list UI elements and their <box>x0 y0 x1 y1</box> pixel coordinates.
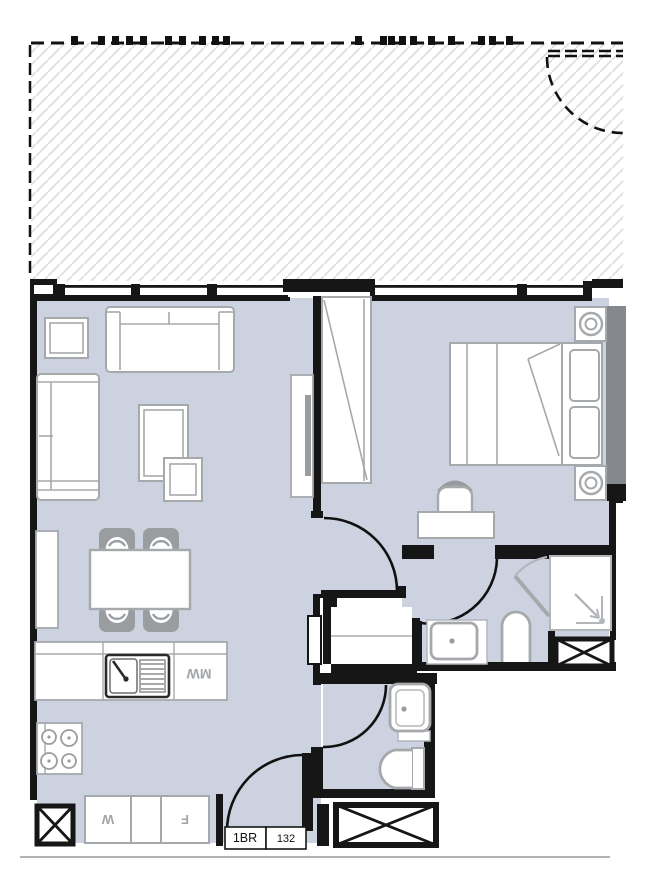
svg-text:W: W <box>101 812 114 827</box>
svg-text:F: F <box>181 812 189 827</box>
svg-text:1BR: 1BR <box>233 831 257 845</box>
svg-text:MW: MW <box>186 666 212 682</box>
svg-text:132: 132 <box>277 833 295 845</box>
